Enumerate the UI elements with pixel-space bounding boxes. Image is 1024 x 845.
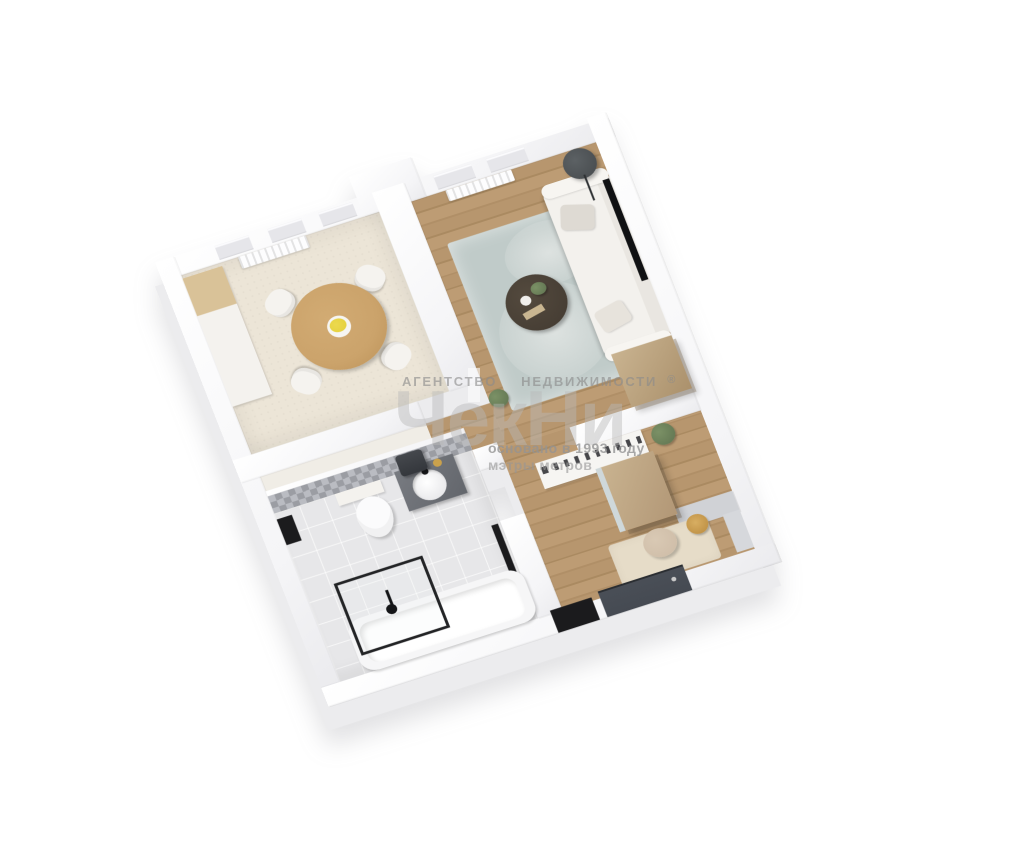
sofa-pillow: [560, 204, 595, 230]
scene-3d: [0, 0, 1024, 845]
floorplan-render: АГЕНТСТВО НЕДВИЖИМОСТИ ® ЧекНи основано …: [0, 0, 1024, 845]
apartment-plan: [155, 117, 781, 706]
